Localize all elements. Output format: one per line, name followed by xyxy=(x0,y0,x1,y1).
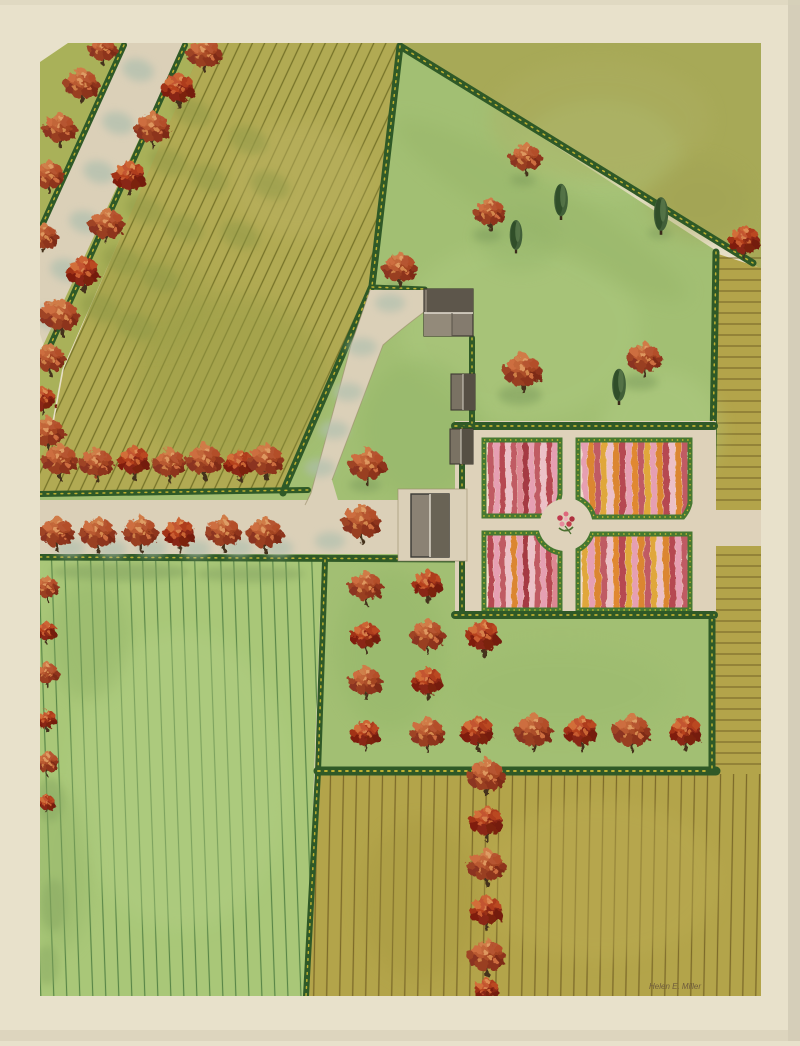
svg-text:Helen E. Miller: Helen E. Miller xyxy=(649,982,701,991)
